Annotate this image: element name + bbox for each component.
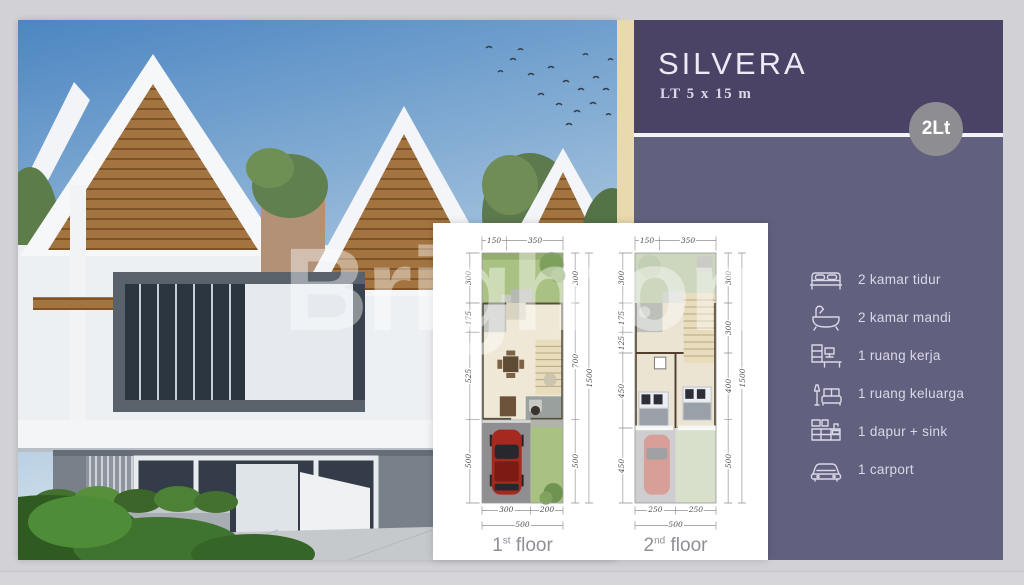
feature-label: 2 kamar tidur	[858, 272, 941, 287]
dimension-label: 525	[465, 368, 473, 384]
feature-label: 1 ruang keluarga	[858, 386, 964, 401]
dimension-label: 150	[639, 237, 655, 245]
sofa-icon	[808, 378, 848, 408]
dimension-label: 500	[572, 453, 580, 469]
storey-badge: 2Lt	[909, 102, 963, 156]
dimension-label: 300	[465, 270, 473, 286]
dimension-label: 300	[618, 270, 626, 286]
dimension-label: 700	[572, 353, 580, 369]
dimension-label: 150	[486, 237, 502, 245]
dimension-label: 175	[618, 309, 626, 325]
floor-caption-2: 2nd floor	[644, 535, 708, 557]
dimension-label: 500	[667, 521, 683, 529]
floor-caption-number: 2	[644, 535, 655, 556]
bathtub-icon	[808, 302, 848, 332]
car-icon	[808, 454, 848, 484]
dimension-label: 175	[465, 309, 473, 325]
dimension-label: 350	[527, 237, 543, 245]
dimension-label: 300	[572, 270, 580, 286]
dimension-label: 250	[647, 506, 663, 514]
floor-caption-suffix: nd	[654, 536, 665, 547]
floor-caption-rest: floor	[665, 535, 707, 556]
dimension-label: 300	[725, 320, 733, 336]
plan2-balcony-view	[635, 426, 716, 504]
bed-illustration	[682, 386, 712, 420]
dimension-label: 450	[618, 457, 626, 473]
feature-label: 2 kamar mandi	[858, 310, 951, 325]
upper-window-left	[113, 272, 365, 412]
product-title: SILVERA	[658, 46, 808, 82]
floorplan-2nd-floor	[635, 253, 716, 503]
dimension-label: 1500	[739, 367, 747, 388]
dimension-label: 400	[725, 378, 733, 394]
plan1-carport	[482, 420, 563, 505]
mat-seam	[0, 571, 1024, 585]
car-illustration	[490, 430, 524, 495]
dimension-label: 1500	[586, 367, 594, 388]
dimension-label: 300	[725, 270, 733, 286]
dimension-label: 350	[680, 237, 696, 245]
dimension-label: 450	[618, 382, 626, 398]
feature-label: 1 ruang kerja	[858, 348, 941, 363]
land-size-subtitle: LT 5 x 15 m	[660, 86, 752, 103]
dimension-label: 300	[498, 506, 514, 514]
plan1-interior	[482, 303, 563, 420]
bed-illustration	[638, 391, 669, 427]
dimension-label: 500	[725, 453, 733, 469]
desk-icon	[808, 340, 848, 370]
floor-caption-rest: floor	[511, 535, 553, 556]
plan2-interior	[635, 293, 716, 428]
feature-label: 1 dapur + sink	[858, 424, 947, 439]
bed-icon	[808, 264, 848, 294]
floorplan-panel: 150 350 300 175 525 500 300 700 500 1500…	[433, 223, 768, 560]
dimension-label: 500	[514, 521, 530, 529]
floor-caption-1: 1st floor	[492, 535, 553, 557]
floorplan-1st-floor	[482, 253, 563, 503]
kitchen-icon	[808, 416, 848, 446]
dimension-label: 125	[618, 334, 626, 350]
dimension-label: 200	[539, 506, 555, 514]
floor-caption-number: 1	[492, 535, 503, 556]
feature-label: 1 carport	[858, 462, 914, 477]
plan1-garden-back	[482, 252, 565, 303]
brochure-page: Brighton SILVERA LT 5 x 15 m 2Lt 2 kamar…	[0, 0, 1024, 585]
dimension-label: 250	[688, 506, 704, 514]
dimension-label: 500	[465, 453, 473, 469]
